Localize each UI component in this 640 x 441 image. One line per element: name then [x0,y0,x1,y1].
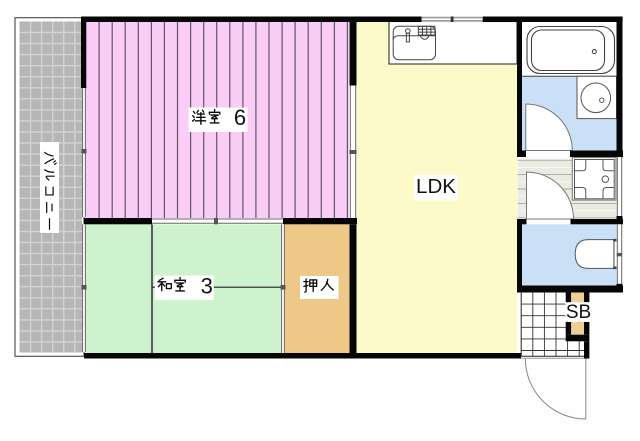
svg-text:SB: SB [566,302,591,323]
svg-text:6: 6 [234,105,246,130]
svg-text:3: 3 [201,274,213,299]
svg-text:LDK: LDK [416,175,456,198]
